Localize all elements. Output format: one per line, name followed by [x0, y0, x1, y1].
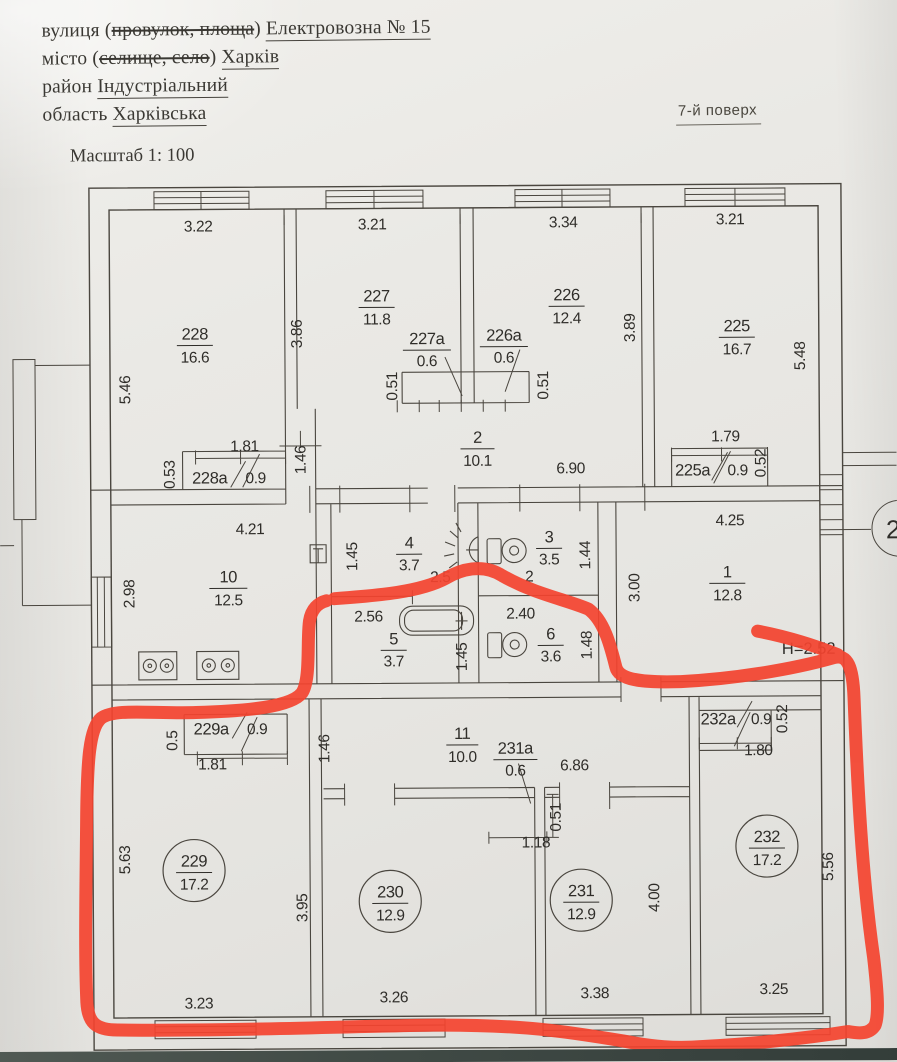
- closet-226a-number: 226a: [486, 327, 522, 345]
- bathtub-icon: [399, 606, 473, 635]
- room-228-number: 228: [182, 325, 209, 343]
- dim-room6-right: 1.48: [579, 631, 596, 660]
- dim-bottom-230: 3.26: [380, 989, 409, 1006]
- dim-225a-height: 0.52: [753, 449, 770, 478]
- dim-left-229: 5.63: [117, 846, 134, 875]
- scanned-floor-plan-page: вулиця (провулок, площа) Електровозна № …: [0, 0, 897, 1062]
- room-226-area: 12.4: [552, 310, 581, 327]
- corridor-11-area: 10.0: [448, 749, 477, 766]
- sink-icon: [444, 523, 478, 568]
- wall-tap-icon: [310, 545, 326, 563]
- corridor-2-number: 2: [473, 429, 482, 447]
- closet-228a-number: 228a: [192, 469, 228, 487]
- dim-right-232: 5.56: [820, 852, 837, 881]
- room-227-area: 11.8: [363, 311, 391, 328]
- closet-227a-area: 0.6: [417, 353, 437, 370]
- closet-225a-number: 225a: [675, 461, 711, 479]
- dim-top-228: 3.22: [184, 218, 213, 235]
- room-229-number: 229: [181, 852, 208, 870]
- room-225-area: 16.7: [723, 341, 752, 358]
- closet-225a-area: 0.9: [727, 462, 747, 479]
- dim-height-226: 3.89: [622, 314, 639, 343]
- room-232-area: 17.2: [753, 852, 782, 869]
- kitchen-stove-icon: [139, 651, 239, 680]
- room-231-number: 231: [568, 882, 595, 900]
- dim-left-228: 5.46: [117, 376, 134, 405]
- dimension-ticks: [194, 212, 772, 845]
- room-4-area: 3.7: [399, 557, 419, 574]
- room-4-number: 4: [405, 534, 414, 552]
- dim-bottom-231: 3.38: [580, 985, 609, 1002]
- dim-corridor2-left: 1.46: [292, 446, 309, 475]
- dim-232a-height: 0.52: [774, 705, 791, 734]
- closet-229a-area: 0.9: [247, 721, 267, 738]
- room-230-number: 230: [377, 883, 404, 901]
- dim-229a-height-partial: 0.5: [164, 730, 181, 750]
- room-225-number: 225: [724, 317, 751, 335]
- exterior-walls: [89, 184, 846, 1051]
- dim-corridor11-left: 1.46: [316, 734, 333, 763]
- dim-232a-width: 1.80: [744, 742, 773, 759]
- room-10-number: 10: [219, 568, 237, 586]
- closet-226a-area: 0.6: [494, 350, 514, 367]
- room-5-number: 5: [389, 630, 398, 648]
- dim-228a-height: 0.53: [162, 460, 179, 489]
- dim-room3-right: 1.44: [577, 540, 594, 569]
- room-6-area: 3.6: [541, 648, 561, 665]
- room-10-area: 12.5: [214, 592, 243, 609]
- corridor-11-number: 11: [454, 725, 471, 743]
- corridor-2-area: 10.1: [463, 453, 492, 470]
- dim-left-230: 3.95: [294, 894, 311, 923]
- toilet-icon: [487, 539, 527, 658]
- dim-231-door-width: 1.18: [522, 834, 551, 851]
- closet-229a-number: 229a: [194, 720, 230, 738]
- room-231-area: 12.9: [567, 906, 596, 923]
- dim-top-227: 3.21: [358, 216, 387, 233]
- dim-height-227: 3.86: [289, 320, 306, 349]
- dim-229a-width: 1.81: [198, 756, 227, 773]
- red-marker-annotation: [83, 566, 877, 1051]
- closet-232a-number: 232a: [701, 710, 737, 728]
- dim-room1-left: 3.00: [626, 573, 643, 602]
- dim-right-231: 4.00: [646, 883, 663, 912]
- dim-bottom-229: 3.23: [185, 995, 214, 1012]
- closet-232a-area: 0.9: [751, 711, 771, 728]
- dim-corridor11-width: 6.86: [560, 757, 589, 774]
- window-symbols: [89, 188, 846, 1040]
- balcony-outline: [0, 359, 91, 606]
- section-ref-number: 2: [886, 514, 897, 544]
- dim-room10-left: 2.98: [121, 580, 138, 609]
- room-229-area: 17.2: [180, 876, 209, 893]
- room-3-area: 3.5: [539, 551, 559, 568]
- dim-225a-width: 1.79: [711, 428, 740, 445]
- dim-room5-right: 1.45: [454, 643, 471, 672]
- dim-room1-top: 4.25: [716, 512, 745, 529]
- closet-231a-area: 0.6: [505, 763, 525, 780]
- dim-226a-door: 0.51: [535, 371, 552, 400]
- room-6-number: 6: [546, 625, 555, 643]
- dim-corridor2-width: 6.90: [556, 460, 585, 477]
- closet-227a-number: 227a: [409, 330, 445, 348]
- dim-room10-top: 4.21: [236, 521, 265, 538]
- dim-231-door-height: 0.51: [548, 803, 565, 832]
- room-227-number: 227: [363, 287, 390, 305]
- dim-room6-width: 2.40: [506, 605, 535, 622]
- closet-228a-area: 0.9: [245, 470, 265, 487]
- dim-bottom-232: 3.25: [759, 981, 788, 998]
- dim-room5-width: 2.56: [354, 608, 383, 625]
- room-5-area: 3.7: [384, 653, 404, 670]
- closet-231a-number: 231a: [498, 739, 534, 757]
- dim-top-225: 3.21: [716, 211, 745, 228]
- room-1-number: 1: [723, 563, 732, 581]
- red-marker-loop: [83, 566, 877, 1051]
- room-226-number: 226: [553, 286, 580, 304]
- dim-228a-width: 1.81: [230, 438, 259, 455]
- dim-room4-left: 1.45: [344, 542, 361, 571]
- room-3-number: 3: [545, 528, 554, 546]
- dim-top-226: 3.34: [549, 214, 578, 231]
- room-228-area: 16.6: [181, 349, 210, 366]
- room-232-number: 232: [754, 828, 781, 846]
- dim-right-225: 5.48: [792, 342, 809, 371]
- room-label-circles: [163, 815, 799, 934]
- floor-plan-drawing: 2: [0, 0, 897, 1062]
- room-1-area: 12.8: [713, 587, 742, 604]
- room-230-area: 12.9: [376, 907, 405, 924]
- dim-227a-door: 0.51: [384, 372, 401, 401]
